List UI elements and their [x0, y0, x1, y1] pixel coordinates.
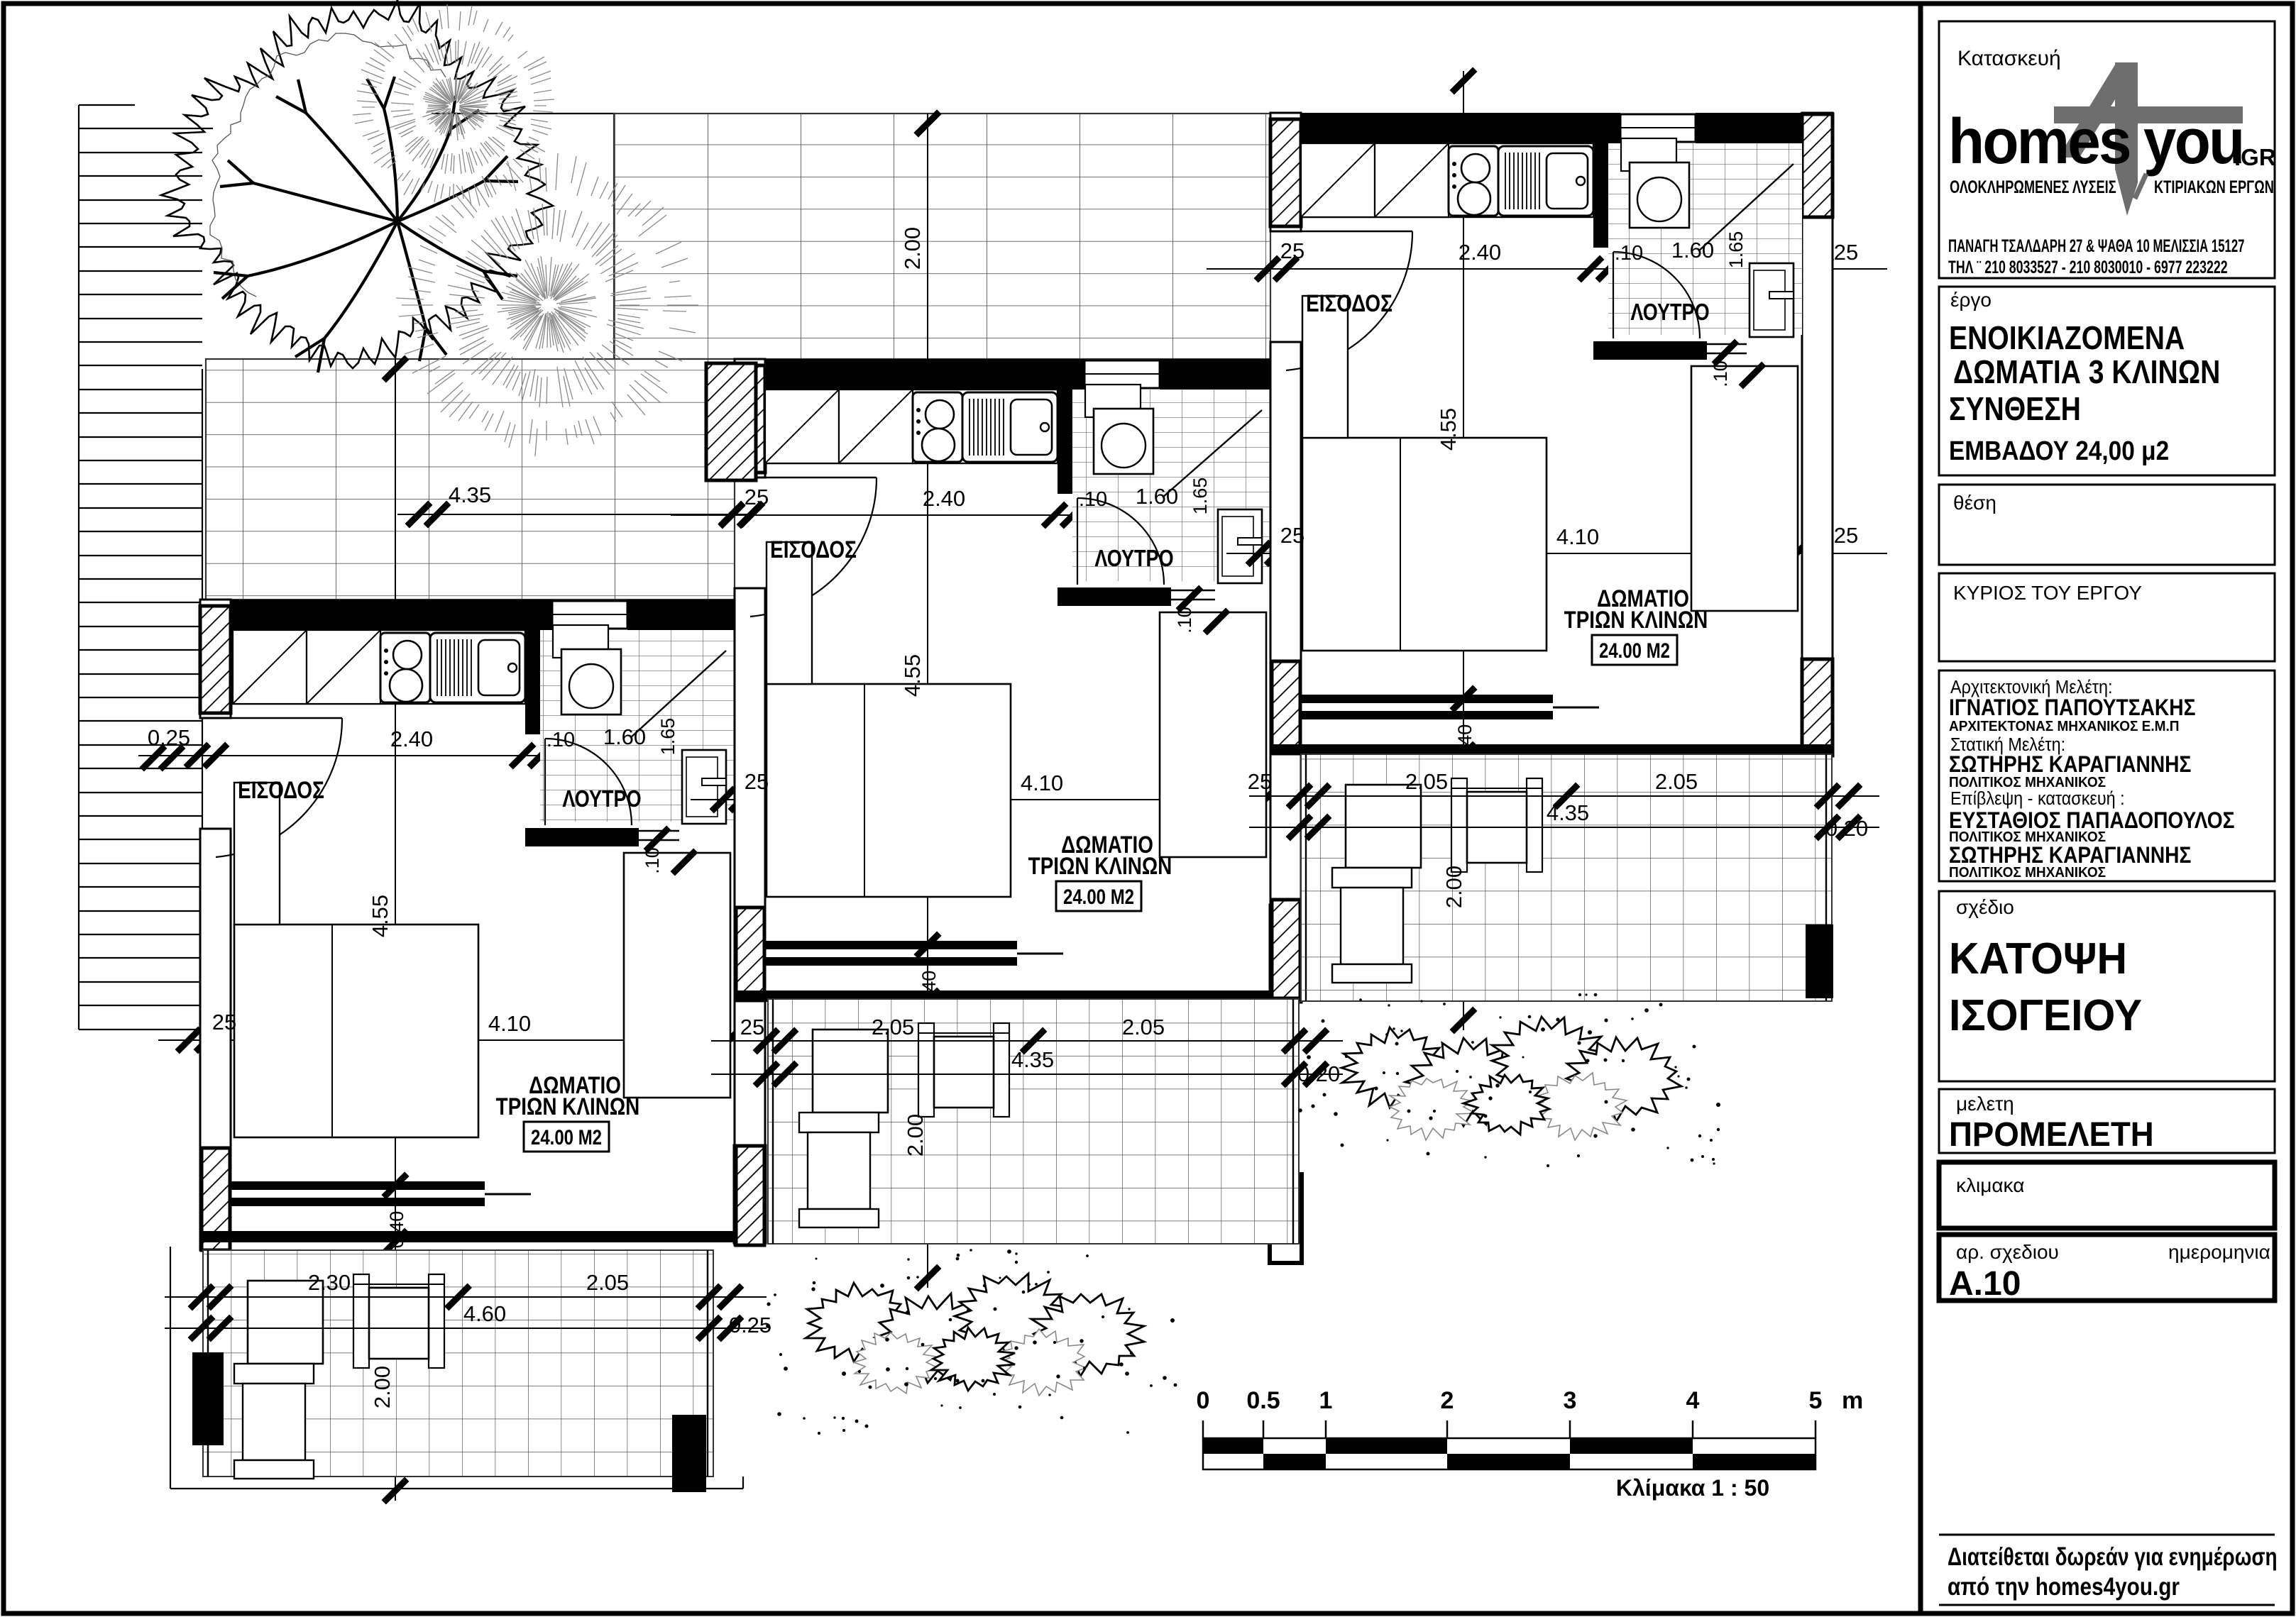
svg-text:3: 3 [1564, 1387, 1577, 1414]
svg-text:4.10: 4.10 [1556, 524, 1599, 549]
svg-text:Επίβλεψη - κατασκευή :: Επίβλεψη - κατασκευή : [1950, 789, 2125, 809]
svg-text:ΚΥΡΙΟΣ ΤΟΥ ΕΡΓΟΥ: ΚΥΡΙΟΣ ΤΟΥ ΕΡΓΟΥ [1953, 582, 2142, 604]
svg-text:5: 5 [1809, 1387, 1823, 1414]
svg-text:25: 25 [1172, 368, 1193, 390]
svg-text:ΕΙΣΟΔΟΣ: ΕΙΣΟΔΟΣ [770, 536, 857, 563]
svg-text:.10: .10 [1710, 360, 1731, 387]
svg-text:ΤΡΙΩΝ ΚΛΙΝΩΝ: ΤΡΙΩΝ ΚΛΙΝΩΝ [1028, 852, 1172, 879]
svg-text:Κλίμακα 1 : 50: Κλίμακα 1 : 50 [1616, 1475, 1769, 1501]
svg-text:homes: homes [1948, 106, 2130, 177]
svg-text:2.05: 2.05 [872, 1015, 914, 1039]
svg-text:.GR: .GR [2234, 144, 2276, 170]
svg-text:2.00: 2.00 [903, 1114, 928, 1157]
svg-text:από την homes4you.gr: από την homes4you.gr [1948, 1573, 2180, 1601]
svg-text:2.05: 2.05 [586, 1270, 629, 1295]
svg-text:25: 25 [1248, 769, 1272, 794]
svg-text:ΠΡΟΜΕΛΕΤΗ: ΠΡΟΜΕΛΕΤΗ [1949, 1115, 2154, 1153]
svg-text:ΛΟΥΤΡΟ: ΛΟΥΤΡΟ [562, 787, 641, 812]
svg-text:4.60: 4.60 [463, 1301, 506, 1326]
svg-text:2.40: 2.40 [390, 727, 433, 751]
svg-text:4.35: 4.35 [1011, 1047, 1054, 1072]
svg-text:4.35: 4.35 [449, 482, 491, 507]
svg-text:24.00 M2: 24.00 M2 [1063, 884, 1134, 908]
svg-text:ΛΟΥΤΡΟ: ΛΟΥΤΡΟ [1094, 546, 1173, 572]
svg-text:ΙΓΝΑΤΙΟΣ ΠΑΠΟΥΤΣΑΚΗΣ: ΙΓΝΑΤΙΟΣ ΠΑΠΟΥΤΣΑΚΗΣ [1949, 695, 2195, 720]
svg-text:ημερομηνια: ημερομηνια [2168, 1241, 2270, 1263]
svg-text:ΚΑΤΟΨΗ: ΚΑΤΟΨΗ [1949, 934, 2127, 983]
svg-text:4.35: 4.35 [1547, 800, 1589, 825]
svg-text:.10: .10 [546, 729, 575, 751]
svg-text:.10: .10 [1079, 488, 1107, 511]
svg-text:0: 0 [1197, 1387, 1210, 1414]
svg-text:ΕΜΒΑΔΟΥ 24,00 μ2: ΕΜΒΑΔΟΥ 24,00 μ2 [1949, 436, 2169, 465]
svg-text:ΠΟΛΙΤΙΚΟΣ ΜΗΧΑΝΙΚΟΣ: ΠΟΛΙΤΙΚΟΣ ΜΗΧΑΝΙΚΟΣ [1949, 775, 2106, 791]
svg-text:Αρχιτεκτονική Μελέτη:: Αρχιτεκτονική Μελέτη: [1950, 678, 2112, 697]
svg-text:θέση: θέση [1953, 492, 1996, 514]
svg-text:1.60: 1.60 [1671, 238, 1714, 263]
svg-text:0.25: 0.25 [148, 725, 190, 750]
svg-text:1.65: 1.65 [657, 718, 679, 756]
svg-text:25: 25 [1280, 238, 1304, 263]
svg-text:Α.10: Α.10 [1949, 1265, 2021, 1303]
svg-text:ΟΛΟΚΛΗΡΩΜΕΝΕΣ ΛΥΣΕΙΣ: ΟΛΟΚΛΗΡΩΜΕΝΕΣ ΛΥΣΕΙΣ [1950, 177, 2116, 197]
svg-text:.10: .10 [642, 847, 663, 874]
svg-text:σχέδιο: σχέδιο [1956, 896, 2014, 918]
svg-text:2.00: 2.00 [1441, 866, 1466, 908]
svg-text:ΚΤΙΡΙΑΚΩΝ ΕΡΓΩΝ: ΚΤΙΡΙΑΚΩΝ ΕΡΓΩΝ [2154, 177, 2274, 197]
svg-text:25: 25 [745, 769, 769, 794]
svg-text:0.25: 0.25 [729, 1313, 771, 1337]
svg-text:1.60: 1.60 [603, 724, 646, 749]
svg-text:25: 25 [375, 602, 397, 623]
svg-text:ΔΩΜΑΤΙΑ 3 ΚΛΙΝΩΝ: ΔΩΜΑΤΙΑ 3 ΚΛΙΝΩΝ [1953, 354, 2220, 391]
svg-text:1.60: 1.60 [1136, 484, 1178, 509]
svg-text:0.20: 0.20 [1825, 816, 1868, 841]
svg-text:25: 25 [908, 361, 929, 382]
svg-text:.10: .10 [1615, 242, 1643, 265]
svg-text:1: 1 [1319, 1387, 1333, 1414]
svg-text:25: 25 [639, 609, 661, 630]
svg-text:ΣΩΤΗΡΗΣ ΚΑΡΑΓΙΑΝΝΗΣ: ΣΩΤΗΡΗΣ ΚΑΡΑΓΙΑΝΝΗΣ [1949, 752, 2191, 777]
svg-text:4: 4 [1686, 1387, 1700, 1414]
svg-text:1.65: 1.65 [1190, 478, 1211, 515]
svg-text:2.40: 2.40 [923, 486, 965, 511]
svg-text:ΤΡΙΩΝ ΚΛΙΝΩΝ: ΤΡΙΩΝ ΚΛΙΝΩΝ [1564, 606, 1708, 633]
svg-text:m: m [1842, 1387, 1863, 1414]
svg-text:ΤΡΙΩΝ ΚΛΙΝΩΝ: ΤΡΙΩΝ ΚΛΙΝΩΝ [496, 1093, 640, 1120]
svg-text:ΕΙΣΟΔΟΣ: ΕΙΣΟΔΟΣ [1306, 289, 1393, 316]
svg-text:25: 25 [1708, 122, 1729, 143]
svg-text:25: 25 [740, 1015, 764, 1039]
svg-text:4.55: 4.55 [1436, 408, 1461, 451]
svg-text:2: 2 [1441, 1387, 1454, 1414]
svg-text:ΕΙΣΟΔΟΣ: ΕΙΣΟΔΟΣ [238, 776, 324, 803]
svg-text:25: 25 [1280, 523, 1304, 548]
svg-text:2.40: 2.40 [1459, 240, 1501, 265]
svg-text:2.30: 2.30 [308, 1270, 351, 1295]
svg-text:25: 25 [1834, 240, 1858, 265]
svg-text:ΛΟΥΤΡΟ: ΛΟΥΤΡΟ [1630, 300, 1709, 326]
svg-text:2.00: 2.00 [370, 1366, 395, 1408]
svg-text:.10: .10 [1174, 607, 1195, 634]
svg-text:you: you [2143, 106, 2243, 177]
svg-text:4.10: 4.10 [488, 1011, 531, 1036]
svg-text:1.65: 1.65 [1725, 231, 1747, 269]
svg-text:24.00 M2: 24.00 M2 [531, 1125, 602, 1149]
svg-text:Κατασκευή: Κατασκευή [1957, 47, 2061, 70]
svg-text:0.20: 0.20 [1297, 1061, 1340, 1086]
svg-text:2.00: 2.00 [900, 227, 925, 270]
svg-text:Διατείθεται δωρεάν για ενημέρω: Διατείθεται δωρεάν για ενημέρωση [1948, 1543, 2278, 1571]
svg-text:ΠΑΝΑΓΗ ΤΣΑΛΔΑΡΗ 27 & ΨΑΘΑ 10: ΠΑΝΑΓΗ ΤΣΑΛΔΑΡΗ 27 & ΨΑΘΑ 10 ΜΕΛΙΣΣΙΑ 15… [1948, 236, 2244, 256]
svg-text:μελετη: μελετη [1956, 1093, 2014, 1115]
svg-text:2.05: 2.05 [1122, 1015, 1165, 1039]
svg-text:25: 25 [212, 1010, 236, 1034]
svg-text:2.05: 2.05 [1655, 769, 1698, 794]
svg-text:0.5: 0.5 [1246, 1387, 1280, 1414]
svg-text:25: 25 [1834, 523, 1858, 548]
svg-text:4.55: 4.55 [368, 895, 392, 937]
svg-text:κλιμακα: κλιμακα [1956, 1174, 2024, 1196]
svg-text:ΣΥΝΘΕΣΗ: ΣΥΝΘΕΣΗ [1949, 391, 2081, 428]
svg-text:25: 25 [1444, 115, 1465, 136]
svg-text:ΙΣΟΓΕΙΟΥ: ΙΣΟΓΕΙΟΥ [1949, 990, 2142, 1040]
svg-text:24.00 M2: 24.00 M2 [1599, 638, 1670, 662]
svg-text:αρ. σχεδιου: αρ. σχεδιου [1956, 1241, 2059, 1263]
svg-text:ΑΡΧΙΤΕΚΤΟΝΑΣ ΜΗΧΑΝΙΚΟΣ Ε.Μ.Π: ΑΡΧΙΤΕΚΤΟΝΑΣ ΜΗΧΑΝΙΚΟΣ Ε.Μ.Π [1949, 719, 2179, 735]
svg-text:4.55: 4.55 [900, 654, 925, 697]
svg-text:2.05: 2.05 [1405, 769, 1448, 794]
svg-text:έργο: έργο [1950, 289, 1992, 311]
svg-text:ΤΗΛ ¨ 210 8033527 - 210 803001: ΤΗΛ ¨ 210 8033527 - 210 8030010 - 6977 2… [1948, 257, 2228, 277]
svg-text:ΠΟΛΙΤΙΚΟΣ ΜΗΧΑΝΙΚΟΣ: ΠΟΛΙΤΙΚΟΣ ΜΗΧΑΝΙΚΟΣ [1949, 865, 2106, 881]
svg-text:4.10: 4.10 [1021, 771, 1063, 795]
svg-text:ΕΝΟΙΚΙΑΖΟΜΕΝΑ: ΕΝΟΙΚΙΑΖΟΜΕΝΑ [1949, 320, 2185, 357]
